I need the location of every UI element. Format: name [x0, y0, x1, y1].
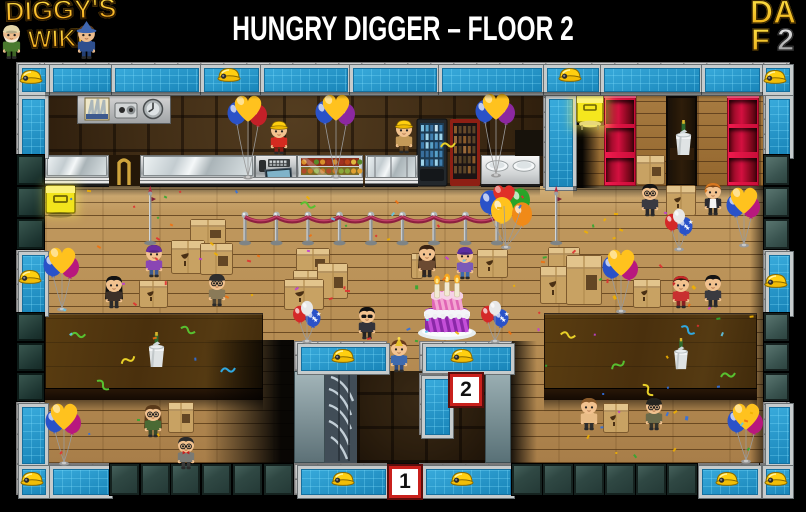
svg-text:★: ★: [501, 317, 506, 324]
svg-text:★: ★: [316, 311, 321, 318]
svg-text:★: ★: [685, 225, 690, 232]
svg-text:★: ★: [504, 311, 509, 318]
svg-text:★: ★: [313, 317, 318, 324]
svg-text:★: ★: [688, 219, 693, 226]
